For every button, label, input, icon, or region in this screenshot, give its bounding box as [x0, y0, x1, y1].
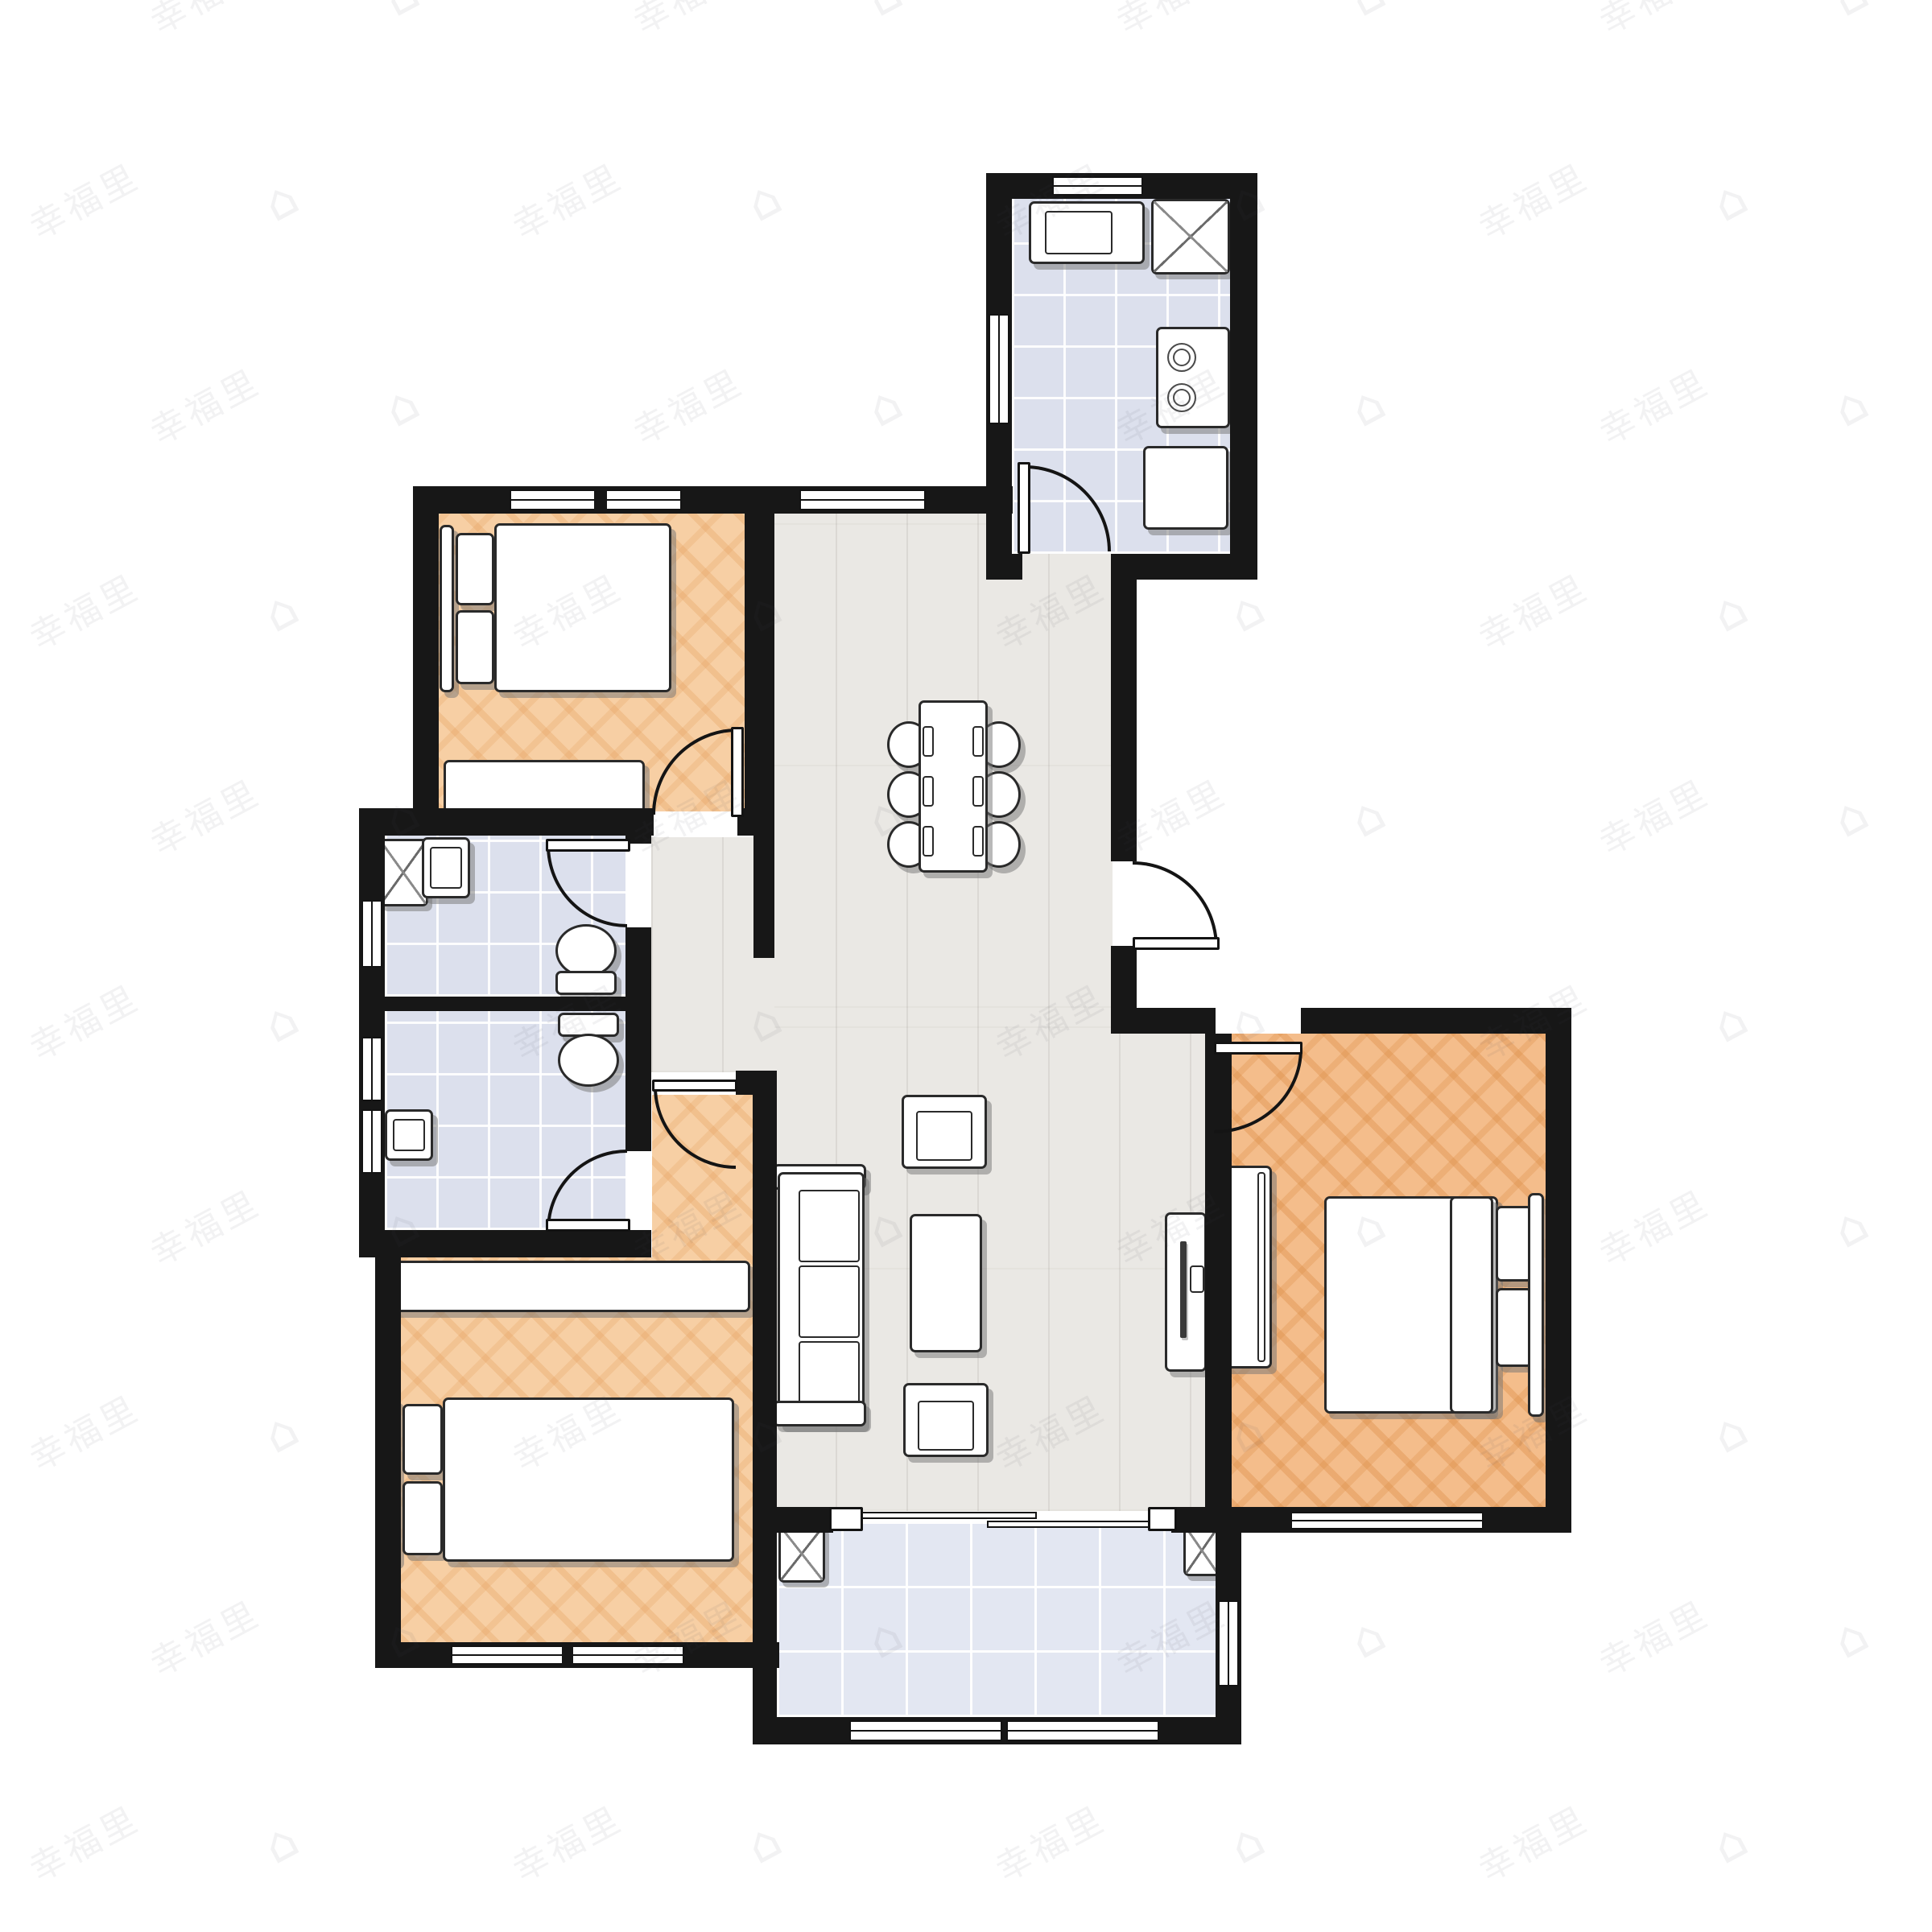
master-wall-top-right: [1301, 1008, 1571, 1034]
floor-plan: ⌂幸福里⌂幸福里⌂幸福里⌂幸福里⌂幸福里⌂幸福里⌂幸福里⌂幸福里⌂幸福里⌂幸福里…: [0, 0, 1932, 1932]
sofa-cushion-2: [799, 1265, 860, 1338]
watermark-house-icon: ⌂: [1824, 374, 1877, 439]
watermark-text: 幸福里: [140, 353, 269, 455]
bed1-pillow-a: [456, 533, 494, 605]
master-window: [1290, 1512, 1484, 1529]
window-mullion-1: [594, 486, 607, 514]
coffee-table: [910, 1214, 982, 1352]
master-bed-fold: [1450, 1196, 1493, 1414]
watermark-house-icon: ⌂: [1703, 990, 1757, 1055]
bedroom1-dresser: [444, 760, 645, 815]
watermark-house-icon: ⌂: [254, 580, 308, 644]
watermark-house-icon: ⌂: [1220, 580, 1274, 644]
watermark-house-icon: ⌂: [1824, 1606, 1877, 1670]
kitchen-window-left: [989, 314, 1009, 424]
watermark-text: 幸福里: [502, 1790, 631, 1892]
tv-device: [1190, 1265, 1204, 1293]
watermark-house-icon: ⌂: [1703, 1811, 1757, 1876]
armchair-bottom-cushion: [918, 1401, 974, 1451]
dining-wall-right: [1111, 554, 1137, 861]
bed2-mattress: [443, 1397, 734, 1562]
bathroom1-window: [361, 900, 382, 968]
balcony-window-b: [1006, 1720, 1159, 1741]
watermark-text: 幸福里: [985, 1790, 1114, 1892]
watermark-text: 幸福里: [623, 0, 752, 44]
watermark-text: 幸福里: [140, 1585, 269, 1686]
kitchen-door-leaf: [1018, 462, 1030, 554]
sofa-armrest-bottom: [773, 1401, 866, 1426]
watermark-text: 幸福里: [1468, 148, 1597, 250]
watermark-house-icon: ⌂: [254, 1401, 308, 1465]
watermark-house-icon: ⌂: [1341, 0, 1394, 28]
placemat-1: [923, 726, 934, 757]
bed2-pillow-a: [402, 1404, 443, 1475]
watermark-house-icon: ⌂: [858, 374, 911, 439]
balcony-window-right: [1218, 1600, 1239, 1686]
bathroom-divider-wall: [359, 997, 651, 1011]
tv-screen: [1180, 1241, 1187, 1338]
watermark-text: 幸福里: [140, 1174, 269, 1276]
bed1-mattress: [494, 523, 671, 692]
watermark-text: 幸福里: [1589, 1585, 1718, 1686]
watermark-house-icon: ⌂: [1703, 1401, 1757, 1465]
bedroom1-wall-bottom: [359, 808, 654, 836]
watermark-house-icon: ⌂: [858, 0, 911, 28]
placemat-6: [972, 826, 984, 857]
balcony-slider-track-a: [861, 1512, 1037, 1519]
placemat-4: [972, 726, 984, 757]
watermark-house-icon: ⌂: [254, 169, 308, 233]
shower-corner-unit: [378, 839, 428, 906]
watermark-house-icon: ⌂: [375, 0, 428, 28]
kitchen-window-top: [1052, 176, 1143, 196]
watermark-house-icon: ⌂: [737, 169, 791, 233]
entry-door-leaf: [1133, 937, 1220, 950]
watermark-text: 幸福里: [19, 148, 148, 250]
watermark-text: 幸福里: [140, 0, 269, 44]
kitchen-stove-counter: [1156, 327, 1230, 428]
bed1-headboard: [440, 525, 454, 692]
watermark-text: 幸福里: [19, 1380, 148, 1481]
watermark-house-icon: ⌂: [1703, 169, 1757, 233]
watermark-text: 幸福里: [1468, 559, 1597, 660]
bedroom1-wall-left: [413, 514, 439, 836]
watermark-house-icon: ⌂: [1824, 785, 1877, 849]
watermark-house-icon: ⌂: [1341, 1606, 1394, 1670]
entry-door-arc: [1133, 861, 1218, 947]
bathroom-wall-right-mid: [625, 927, 651, 1151]
watermark-text: 幸福里: [1589, 0, 1718, 44]
sofa-cushion-1: [799, 1190, 860, 1262]
living-wall-bottom-left: [753, 1507, 833, 1533]
placemat-3: [923, 826, 934, 857]
watermark-house-icon: ⌂: [1341, 785, 1394, 849]
watermark-house-icon: ⌂: [1824, 1195, 1877, 1260]
watermark-house-icon: ⌂: [1824, 0, 1877, 28]
bathroom2-window-a: [361, 1037, 382, 1101]
bathroom1-toilet-tank: [555, 971, 617, 995]
watermark-house-icon: ⌂: [1220, 1811, 1274, 1876]
stove-burner-2: [1167, 383, 1196, 412]
master-door-leaf: [1214, 1042, 1302, 1055]
watermark-house-icon: ⌂: [254, 990, 308, 1055]
kitchen-corner-counter: [1151, 199, 1230, 275]
balcony-corner-unit-left: [778, 1525, 825, 1583]
watermark-text: 幸福里: [19, 1790, 148, 1892]
watermark-house-icon: ⌂: [375, 374, 428, 439]
watermark-text: 幸福里: [1106, 0, 1235, 44]
bathroom2-sink-basin: [393, 1119, 425, 1151]
kitchen-wall-bottom-left: [986, 554, 1022, 580]
balcony-door-jamb-right: [1148, 1507, 1177, 1531]
balcony-floor: [777, 1521, 1216, 1717]
bed2-pillow-b: [402, 1481, 443, 1555]
watermark-text: 幸福里: [1589, 764, 1718, 865]
master-bed-headboard: [1528, 1193, 1544, 1417]
entry-wall-right: [1111, 946, 1137, 1012]
placemat-2: [923, 776, 934, 807]
bathroom2-window-b: [361, 1109, 382, 1174]
bedroom2-wall-left: [375, 1248, 401, 1668]
bathroom2-door-leaf: [546, 1219, 630, 1232]
balcony-door-jamb-left: [829, 1507, 863, 1531]
watermark-house-icon: ⌂: [737, 1811, 791, 1876]
bathroom1-toilet-bowl: [555, 924, 617, 977]
watermark-text: 幸福里: [623, 353, 752, 455]
bathroom1-door-leaf: [546, 839, 630, 852]
bathroom1-sink-basin: [430, 847, 462, 889]
bedroom1-wall-right: [745, 514, 774, 836]
watermark-text: 幸福里: [140, 764, 269, 865]
watermark-text: 幸福里: [19, 559, 148, 660]
dining-window: [799, 489, 926, 510]
watermark-house-icon: ⌂: [1703, 580, 1757, 644]
master-wall-right: [1546, 1008, 1571, 1533]
watermark-text: 幸福里: [19, 969, 148, 1071]
kitchen-sink-basin: [1045, 211, 1113, 254]
watermark-house-icon: ⌂: [254, 1811, 308, 1876]
bathroom2-toilet-bowl: [558, 1034, 619, 1087]
stove-burner-1: [1167, 343, 1196, 372]
watermark-text: 幸福里: [502, 148, 631, 250]
bathroom2-wall-bottom: [359, 1230, 651, 1257]
hall-stub-wall: [753, 836, 774, 958]
watermark-text: 幸福里: [1589, 1174, 1718, 1276]
placemat-5: [972, 776, 984, 807]
balcony-window-a: [849, 1720, 1002, 1741]
bed1-pillow-b: [456, 610, 494, 684]
bedroom2-door-leaf: [652, 1080, 737, 1092]
bedroom1-door-leaf: [731, 727, 744, 817]
kitchen-cabinet: [1143, 446, 1228, 530]
window-mullion-2: [562, 1642, 573, 1668]
balcony-slider-track-b: [987, 1521, 1175, 1528]
master-wardrobe-panel: [1257, 1172, 1265, 1362]
kitchen-wall-right: [1230, 173, 1257, 580]
armchair-top-cushion: [916, 1111, 972, 1161]
bedroom2-wardrobe: [390, 1261, 750, 1312]
watermark-text: 幸福里: [1468, 1790, 1597, 1892]
watermark-text: 幸福里: [1589, 353, 1718, 455]
watermark-house-icon: ⌂: [1341, 374, 1394, 439]
